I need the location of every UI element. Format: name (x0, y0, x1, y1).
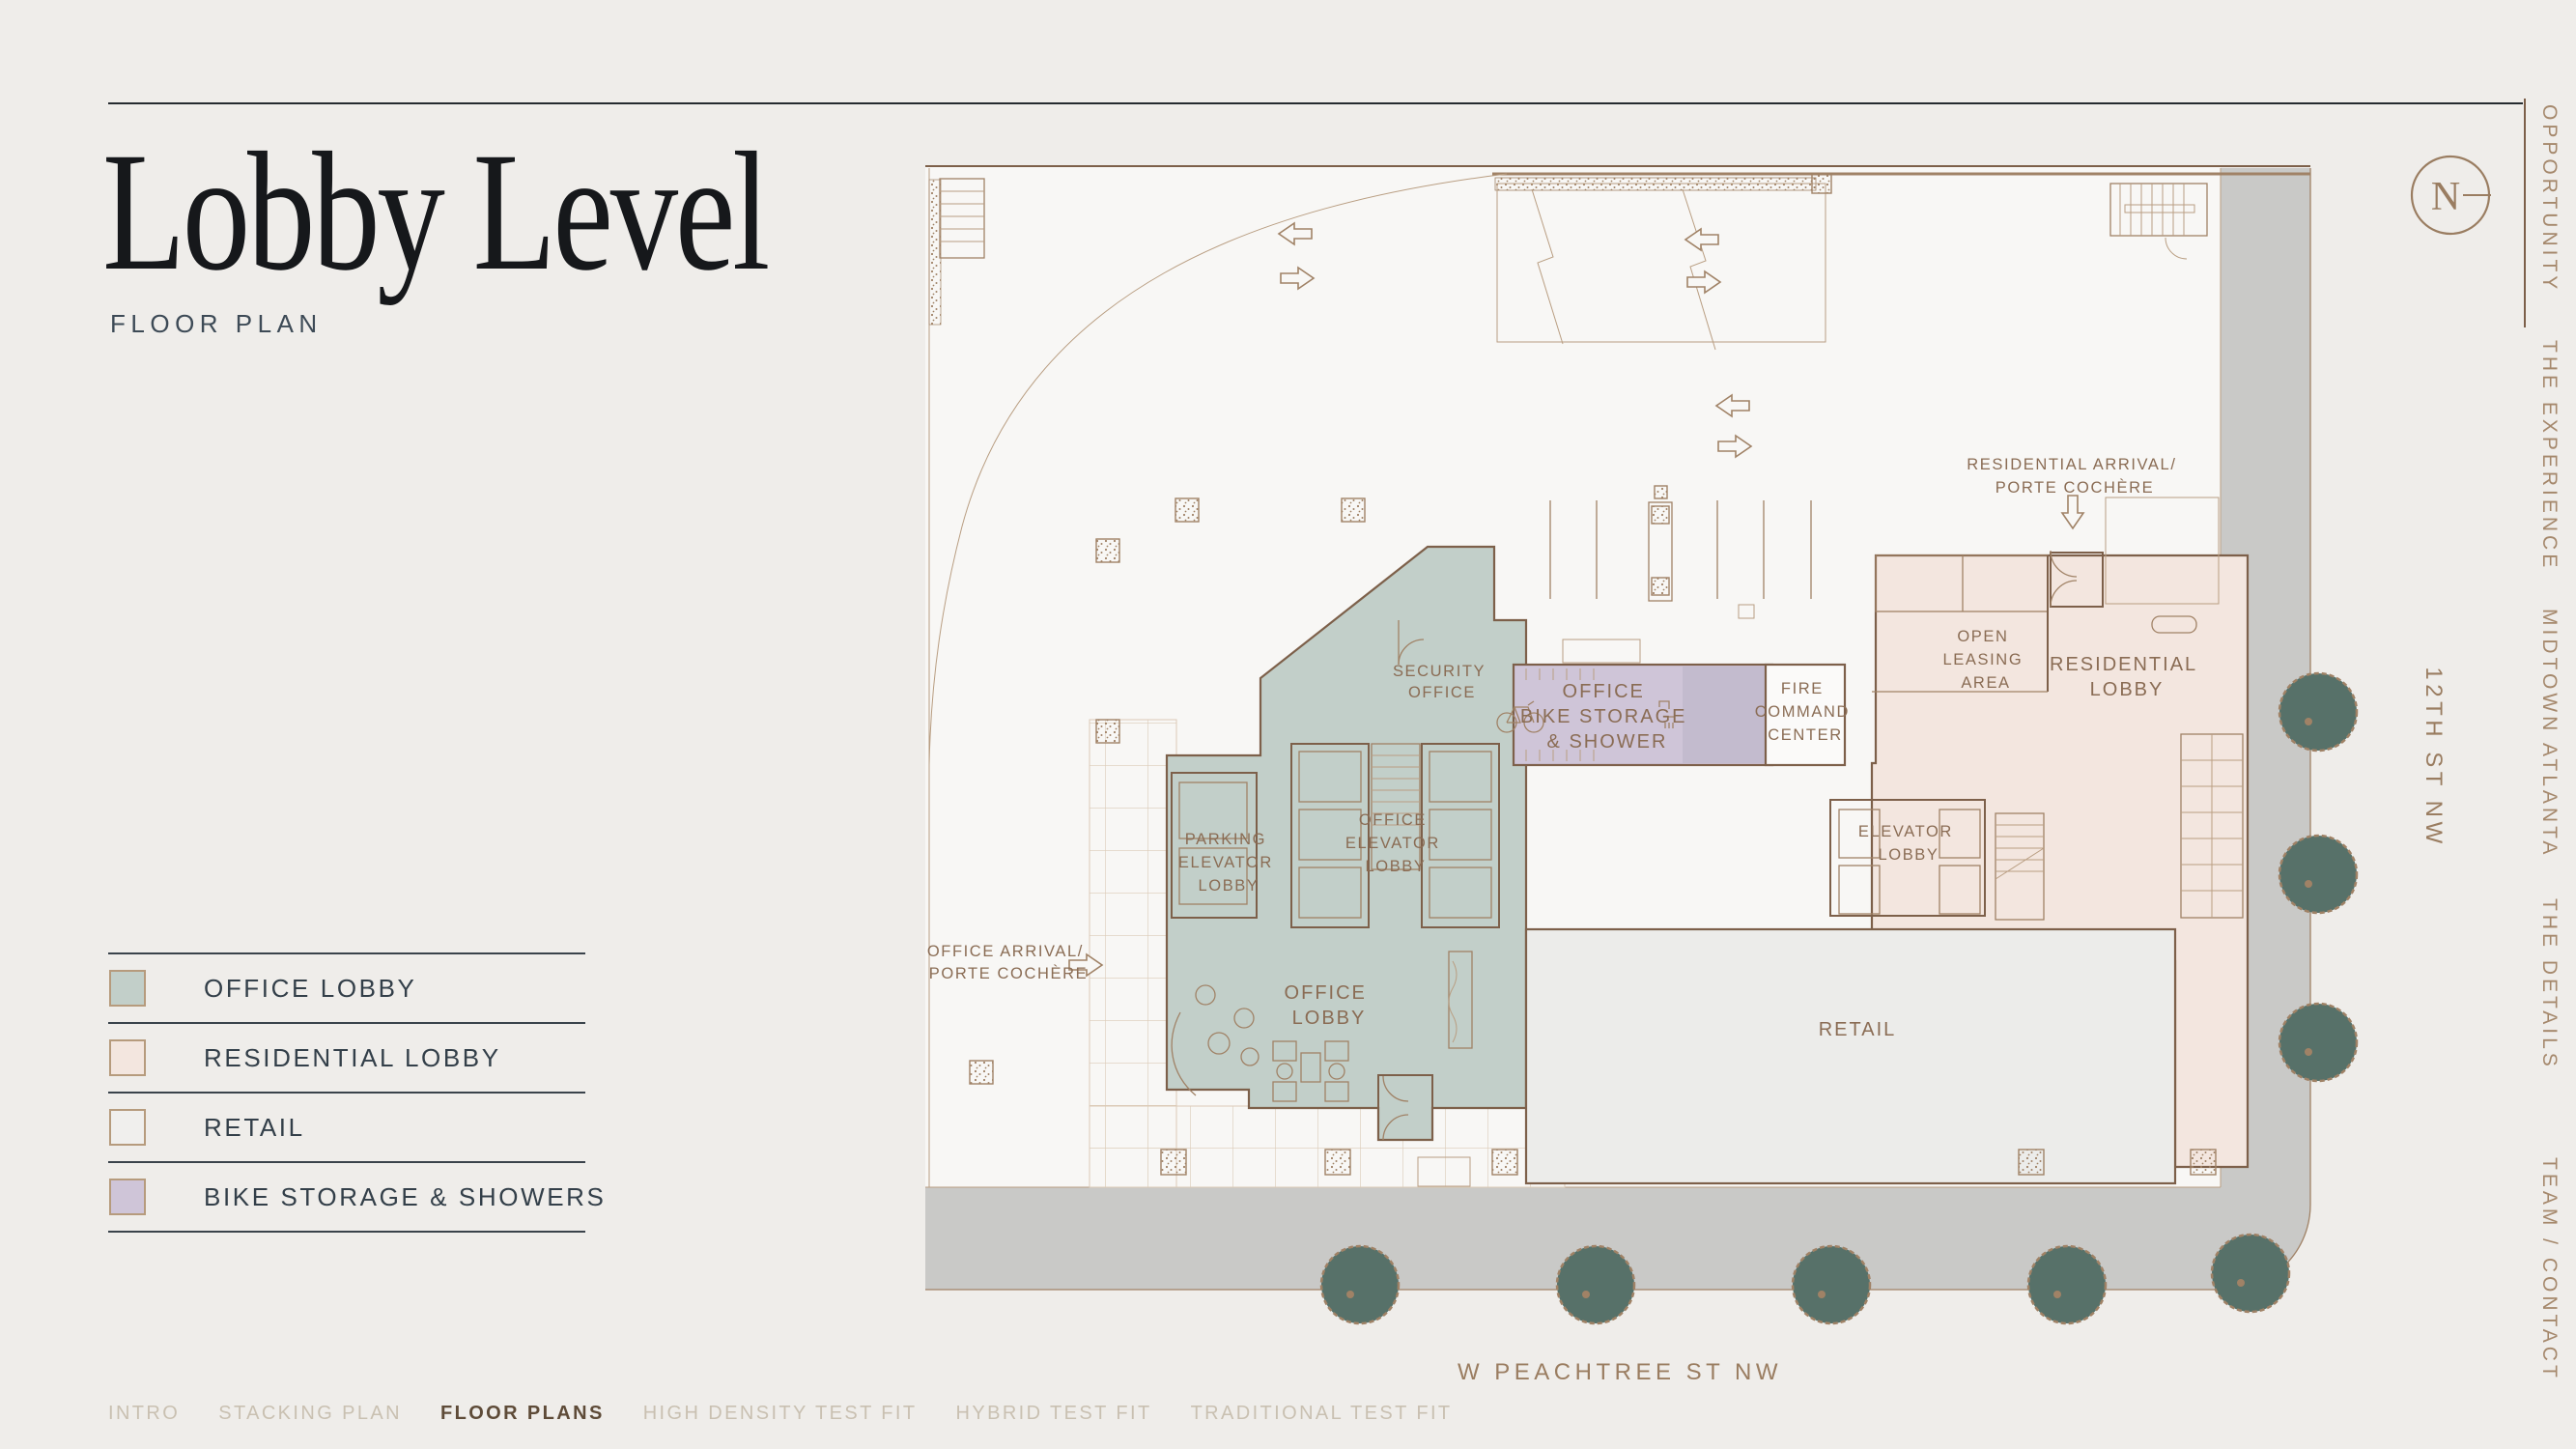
nav-hybrid-test-fit[interactable]: HYBRID TEST FIT (956, 1403, 1152, 1425)
legend-item-residential-lobby: RESIDENTIAL LOBBY (108, 1022, 585, 1092)
legend: OFFICE LOBBY RESIDENTIAL LOBBY RETAIL BI… (108, 952, 585, 1233)
legend-label: RESIDENTIAL LOBBY (204, 1043, 501, 1073)
header-rule (108, 102, 2523, 104)
sidenav-opportunity[interactable]: OPPORTUNITY (2537, 104, 2561, 293)
page-subtitle: FLOOR PLAN (110, 309, 323, 339)
tree-icon (2279, 673, 2357, 751)
nav-traditional-test-fit[interactable]: TRADITIONAL TEST FIT (1191, 1403, 1453, 1425)
floor-plan: SECURITY OFFICE OFFICE BIKE STORAGE & SH… (918, 155, 2502, 1391)
legend-item-office-lobby: OFFICE LOBBY (108, 952, 585, 1022)
sidenav-the-experience[interactable]: THE EXPERIENCE (2537, 340, 2561, 571)
sidenav-the-details[interactable]: THE DETAILS (2537, 898, 2561, 1070)
retail-region (1526, 929, 2175, 1183)
legend-swatch-bike (109, 1179, 146, 1215)
tree-icon (1321, 1246, 1399, 1323)
bottom-nav: INTRO STACKING PLAN FLOOR PLANS HIGH DEN… (108, 1403, 1453, 1425)
page-title: Lobby Level (102, 124, 767, 302)
tree-icon (2279, 836, 2357, 913)
sidenav-midtown-atlanta[interactable]: MIDTOWN ATLANTA (2537, 609, 2561, 858)
legend-item-bike-storage: BIKE STORAGE & SHOWERS (108, 1161, 585, 1231)
nav-intro[interactable]: INTRO (108, 1403, 180, 1425)
legend-label: OFFICE LOBBY (204, 974, 416, 1004)
sidenav-team-contact[interactable]: TEAM / CONTACT (2537, 1157, 2561, 1381)
street-label-south: W PEACHTREE ST NW (1458, 1359, 1782, 1385)
nav-stacking-plan[interactable]: STACKING PLAN (218, 1403, 402, 1425)
legend-item-retail: RETAIL (108, 1092, 585, 1161)
tree-icon (1557, 1246, 1634, 1323)
retail-label: RETAIL (1819, 1019, 1897, 1040)
street-label-east: 12TH ST NW (2420, 667, 2447, 847)
nav-floor-plans[interactable]: FLOOR PLANS (440, 1403, 605, 1425)
tree-icon (1793, 1246, 1870, 1323)
legend-swatch-retail (109, 1109, 146, 1146)
tree-icon (2279, 1004, 2357, 1081)
north-arrow-icon: N (2412, 156, 2491, 234)
legend-swatch-office (109, 970, 146, 1007)
svg-text:N: N (2431, 175, 2460, 219)
nav-high-density-test-fit[interactable]: HIGH DENSITY TEST FIT (643, 1403, 918, 1425)
tree-icon (2212, 1235, 2289, 1312)
legend-label: BIKE STORAGE & SHOWERS (204, 1182, 606, 1212)
legend-label: RETAIL (204, 1113, 305, 1143)
tree-icon (2028, 1246, 2106, 1323)
legend-swatch-residential (109, 1039, 146, 1076)
page: { "page": { "title": "Lobby Level", "sub… (0, 0, 2576, 1449)
